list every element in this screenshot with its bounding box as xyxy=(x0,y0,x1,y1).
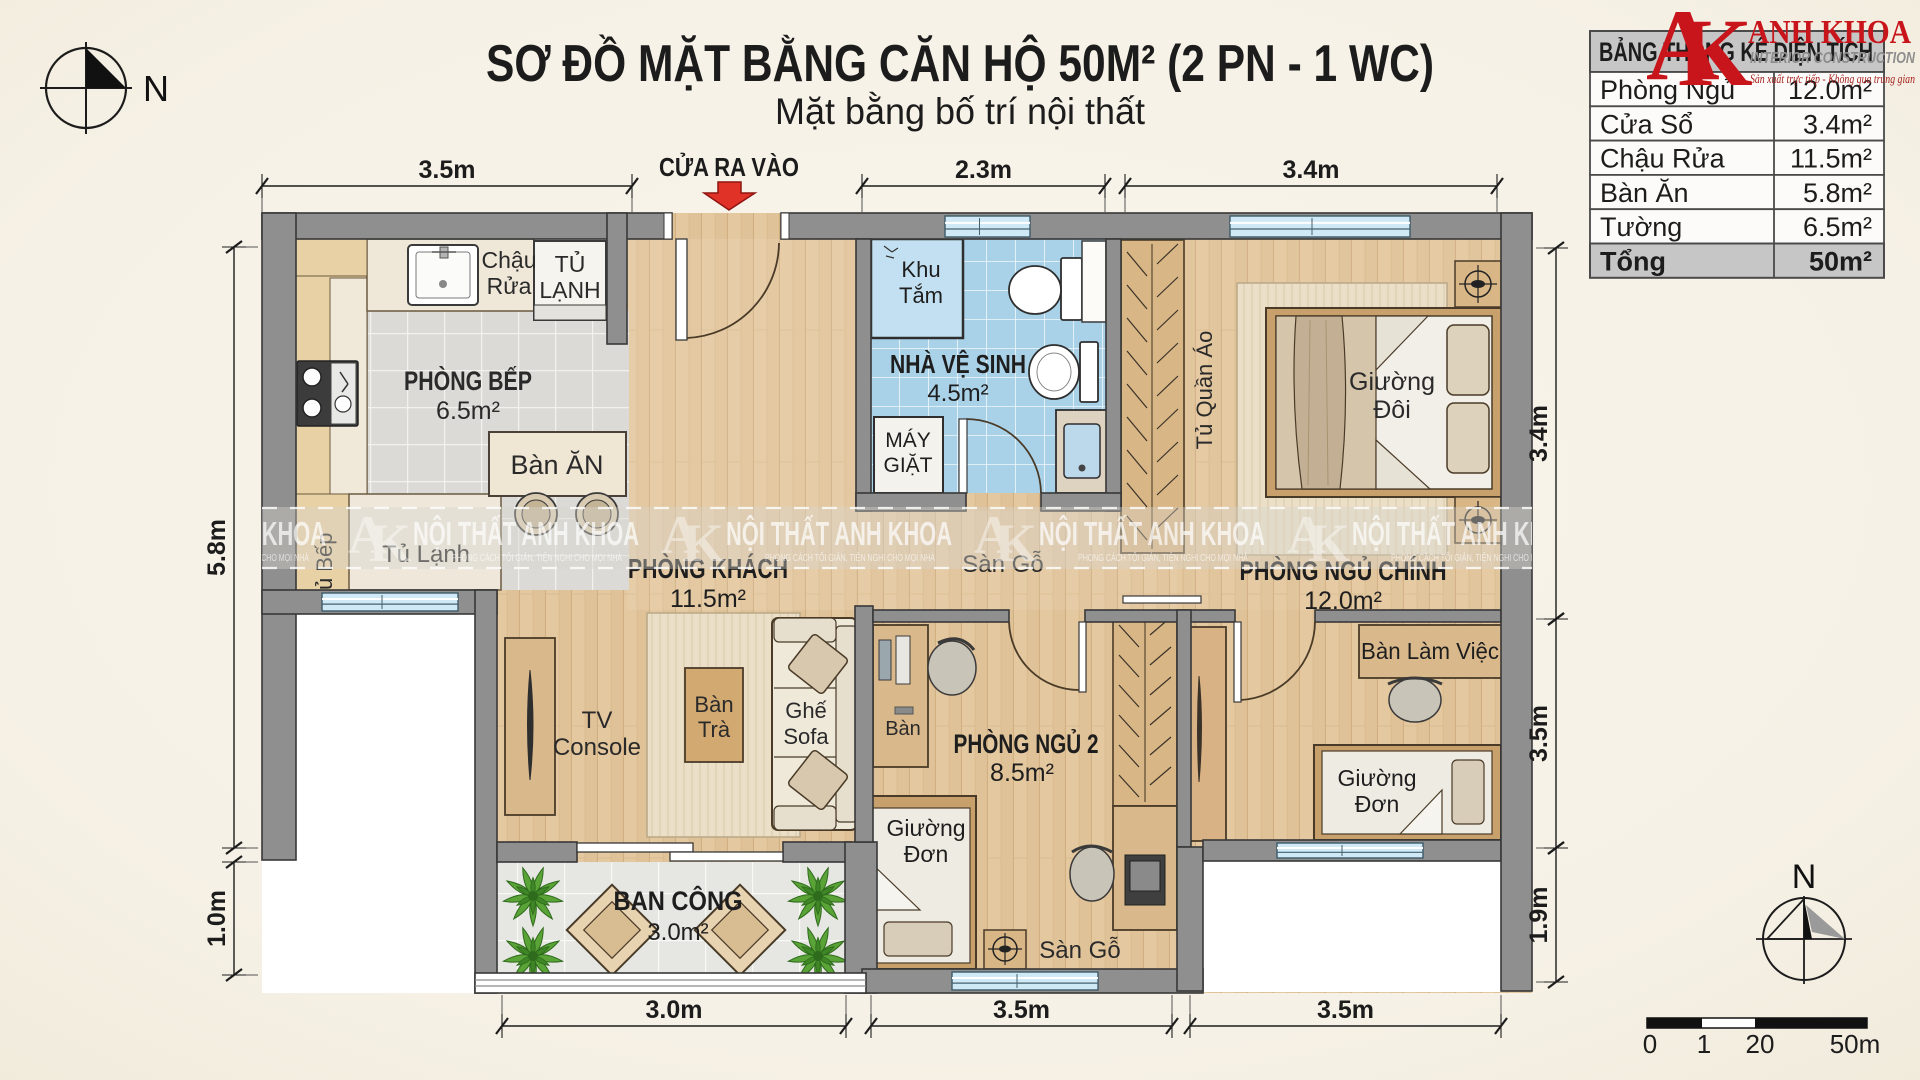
svg-text:PHÒNG BẾP: PHÒNG BẾP xyxy=(404,365,532,396)
svg-text:50m: 50m xyxy=(1830,1029,1881,1059)
svg-text:50m²: 50m² xyxy=(1809,247,1872,277)
svg-text:1.9m: 1.9m xyxy=(1525,887,1553,944)
svg-text:NỘI THẤT ANH KHOA: NỘI THẤT ANH KHOA xyxy=(1039,514,1265,552)
svg-text:3.4m: 3.4m xyxy=(1525,405,1553,462)
svg-text:4.5m²: 4.5m² xyxy=(927,380,988,407)
svg-text:6.5m²: 6.5m² xyxy=(1803,212,1872,242)
svg-text:Sofa: Sofa xyxy=(783,724,829,749)
svg-text:K: K xyxy=(1308,513,1350,573)
svg-text:NHÀ VỆ SINH: NHÀ VỆ SINH xyxy=(890,349,1026,379)
svg-text:N: N xyxy=(143,68,169,109)
svg-text:3.5m: 3.5m xyxy=(419,156,476,184)
svg-text:Tủ Quần Áo: Tủ Quần Áo xyxy=(1192,331,1217,450)
svg-text:Bàn: Bàn xyxy=(885,718,921,740)
svg-text:PHONG CÁCH TỐI GIẢN, TIỆN NGHI: PHONG CÁCH TỐI GIẢN, TIỆN NGHI CHO MỌI N… xyxy=(765,550,935,564)
svg-text:3.5m: 3.5m xyxy=(1525,705,1553,762)
svg-text:SƠ ĐỒ MẶT BẰNG CĂN HỘ 50M² (2: SƠ ĐỒ MẶT BẰNG CĂN HỘ 50M² (2 PN - 1 WC) xyxy=(486,34,1434,93)
svg-text:11.5m²: 11.5m² xyxy=(1790,144,1872,174)
svg-text:Tắm: Tắm xyxy=(899,283,943,308)
svg-text:Bàn ĂN: Bàn ĂN xyxy=(510,450,603,480)
svg-text:Đơn: Đơn xyxy=(1355,791,1399,817)
svg-text:NỘI THẤT ANH KHOA: NỘI THẤT ANH KHOA xyxy=(726,514,952,552)
svg-text:Tường: Tường xyxy=(1600,212,1682,242)
svg-text:3.0m²: 3.0m² xyxy=(647,919,708,946)
svg-text:Giường: Giường xyxy=(886,815,965,841)
svg-text:PHONG CÁCH TỐI GIẢN, TIỆN NGHI: PHONG CÁCH TỐI GIẢN, TIỆN NGHI CHO MỌI N… xyxy=(1078,550,1248,564)
svg-text:TỦ: TỦ xyxy=(555,249,586,277)
svg-text:Cửa Sổ: Cửa Sổ xyxy=(1600,109,1693,139)
svg-text:NỘI THẤT ANH KHOA: NỘI THẤT ANH KHOA xyxy=(413,514,639,552)
svg-text:Khu: Khu xyxy=(901,257,940,282)
svg-text:Chậu Rửa: Chậu Rửa xyxy=(1600,144,1726,174)
svg-text:Bàn: Bàn xyxy=(694,692,733,717)
svg-text:5.8m²: 5.8m² xyxy=(1803,178,1872,208)
svg-text:Bàn Làm Việc: Bàn Làm Việc xyxy=(1361,638,1499,664)
svg-text:K: K xyxy=(369,513,411,573)
svg-text:6.5m²: 6.5m² xyxy=(436,397,500,425)
svg-text:Bàn Ăn: Bàn Ăn xyxy=(1600,178,1689,208)
svg-text:3.5m: 3.5m xyxy=(1317,996,1374,1024)
svg-text:Chậu: Chậu xyxy=(482,247,537,273)
svg-text:1.0m: 1.0m xyxy=(203,890,231,947)
svg-text:5.8m: 5.8m xyxy=(203,519,231,576)
svg-text:PHÒNG NGỦ 2: PHÒNG NGỦ 2 xyxy=(954,727,1099,759)
svg-text:Rửa: Rửa xyxy=(487,273,532,299)
svg-text:0: 0 xyxy=(1643,1029,1657,1059)
svg-text:Giường: Giường xyxy=(1337,765,1416,791)
svg-text:2.3m: 2.3m xyxy=(955,156,1012,184)
svg-text:3.4m: 3.4m xyxy=(1283,156,1340,184)
svg-text:INTERIOR CONSTRUCTION: INTERIOR CONSTRUCTION xyxy=(1750,50,1915,67)
svg-text:Console: Console xyxy=(553,734,641,761)
svg-text:K: K xyxy=(995,513,1037,573)
svg-text:3.0m: 3.0m xyxy=(646,996,703,1024)
svg-text:Tổng: Tổng xyxy=(1600,247,1666,277)
svg-text:TV: TV xyxy=(582,707,613,734)
svg-text:1: 1 xyxy=(1697,1029,1711,1059)
svg-text:20: 20 xyxy=(1746,1029,1775,1059)
svg-text:Đôi: Đôi xyxy=(1373,396,1411,424)
svg-text:3.5m: 3.5m xyxy=(993,996,1050,1024)
svg-text:Sản xuất trực tiếp - Không qua: Sản xuất trực tiếp - Không qua trung gia… xyxy=(1750,71,1915,86)
svg-text:LẠNH: LẠNH xyxy=(539,277,600,303)
svg-text:GIẶT: GIẶT xyxy=(883,454,932,477)
svg-text:3.4m²: 3.4m² xyxy=(1803,109,1872,139)
svg-text:Mặt bằng bố trí nội thất: Mặt bằng bố trí nội thất xyxy=(775,91,1146,132)
svg-text:BAN CÔNG: BAN CÔNG xyxy=(614,885,743,916)
svg-text:Ghế: Ghế xyxy=(785,698,827,723)
svg-text:K: K xyxy=(682,513,724,573)
svg-text:ANH KHOA: ANH KHOA xyxy=(1748,14,1911,51)
svg-text:CỬA RA VÀO: CỬA RA VÀO xyxy=(659,151,799,182)
svg-text:PHONG CÁCH TỐI GIẢN, TIỆN NGHI: PHONG CÁCH TỐI GIẢN, TIỆN NGHI CHO MỌI N… xyxy=(452,550,622,564)
svg-text:K: K xyxy=(1678,0,1753,106)
svg-text:11.5m²: 11.5m² xyxy=(670,585,746,613)
svg-text:N: N xyxy=(1792,858,1817,896)
svg-text:Sàn Gỗ: Sàn Gỗ xyxy=(1039,937,1120,964)
svg-text:Đơn: Đơn xyxy=(904,841,948,867)
svg-text:MÁY: MÁY xyxy=(885,429,931,452)
svg-text:8.5m²: 8.5m² xyxy=(990,759,1054,787)
svg-text:Giường: Giường xyxy=(1349,368,1435,396)
svg-text:Trà: Trà xyxy=(698,717,731,742)
